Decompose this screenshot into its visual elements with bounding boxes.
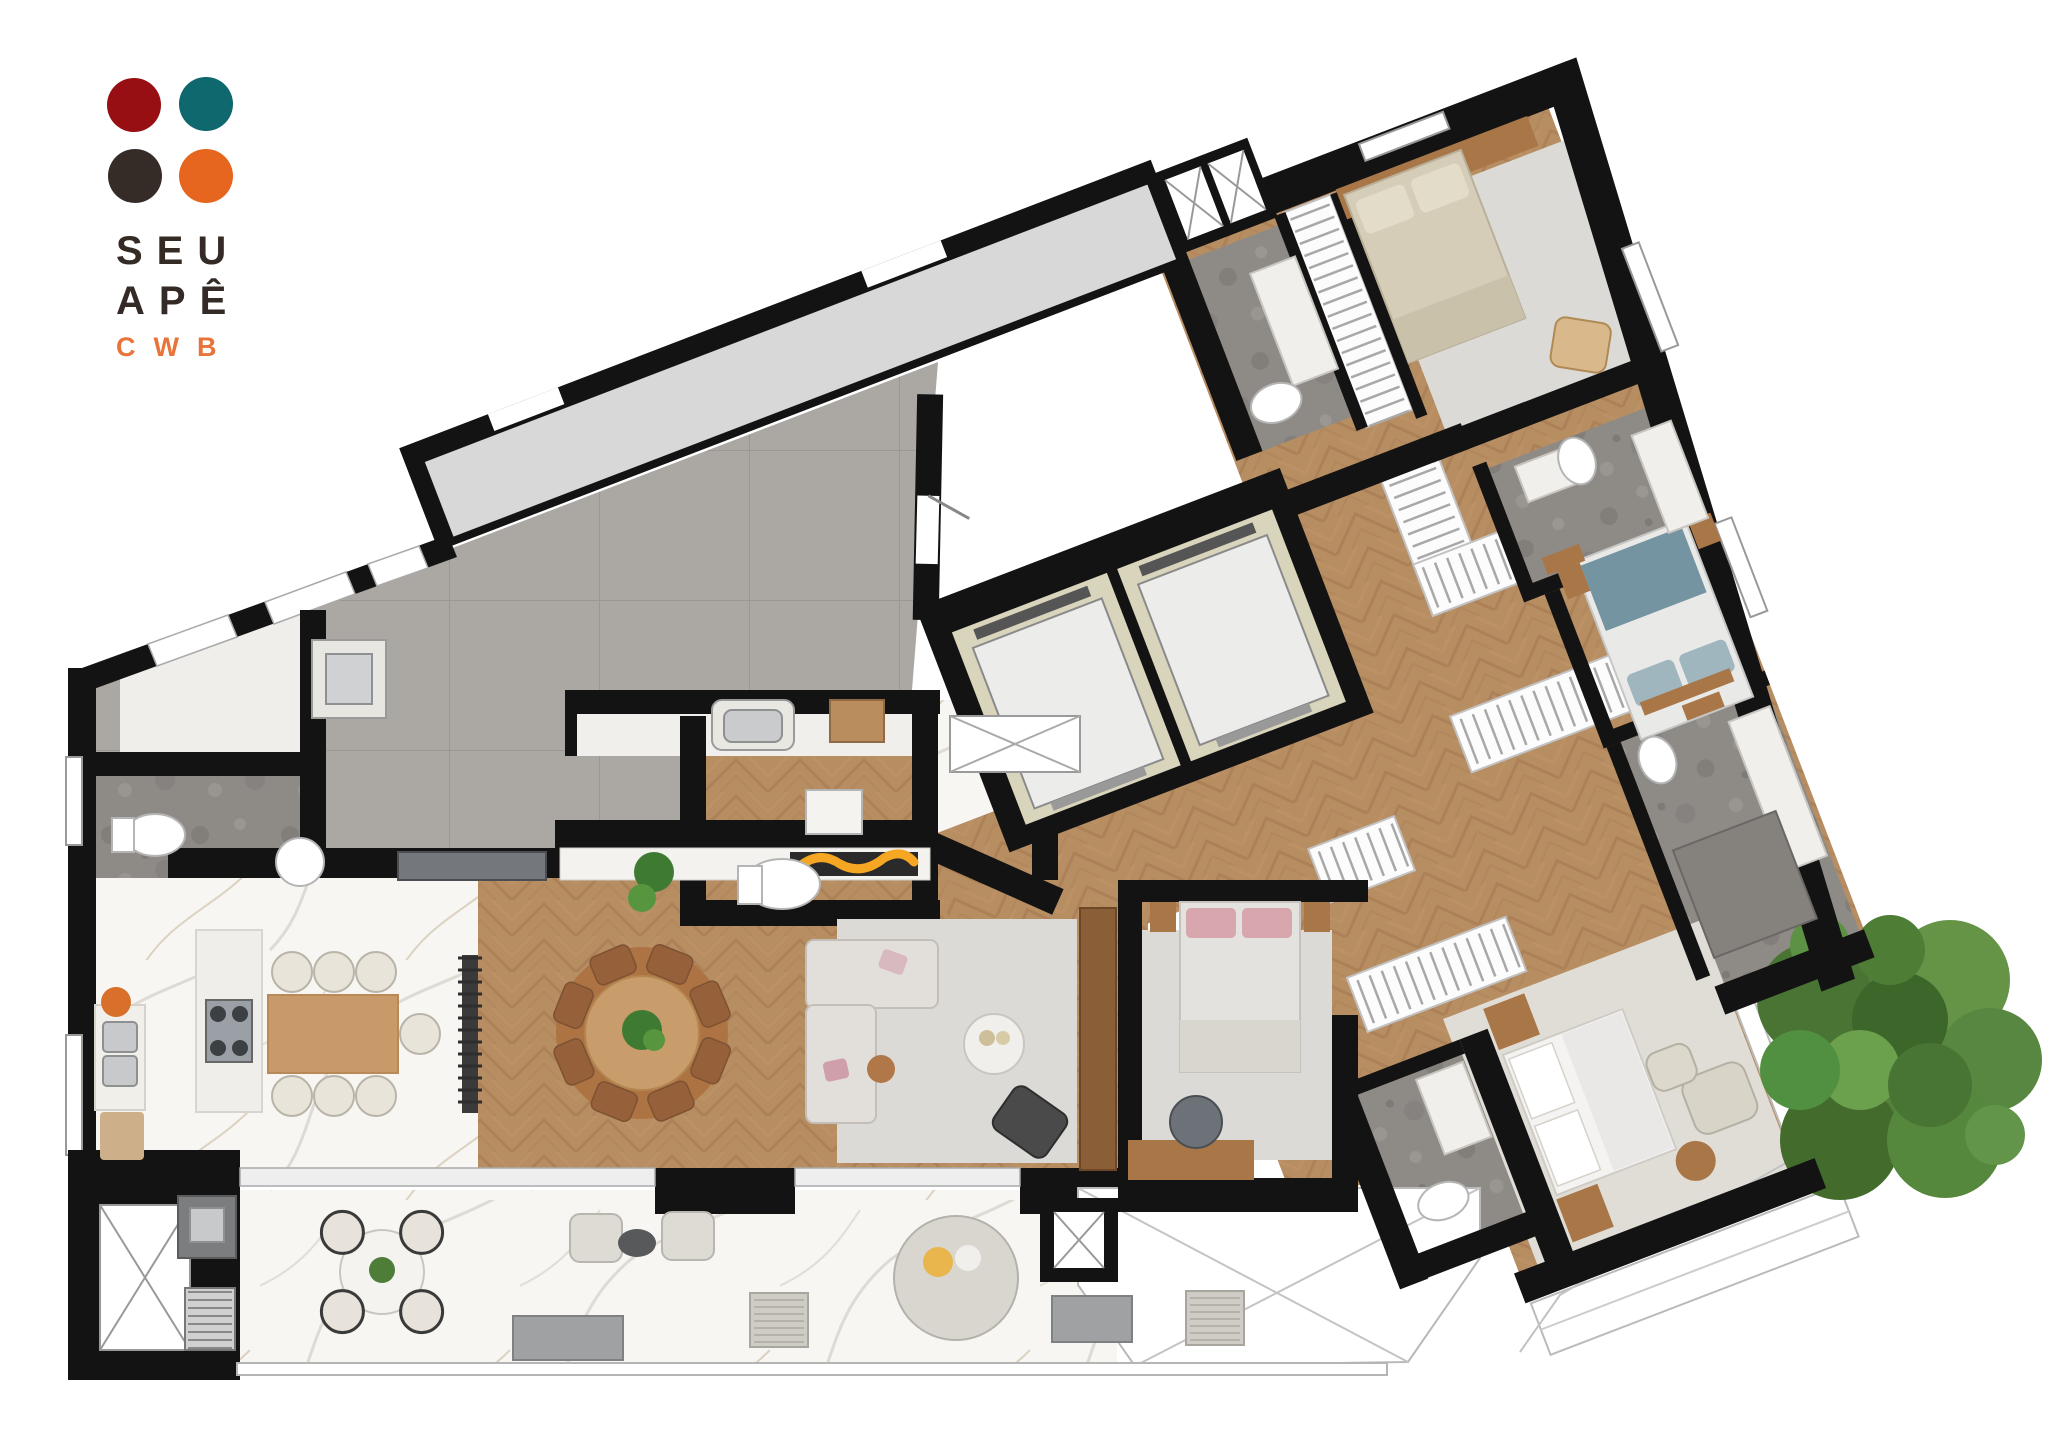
svg-text:CWB: CWB — [116, 332, 234, 362]
svg-text:APÊ: APÊ — [116, 277, 240, 323]
svg-text:SEU: SEU — [116, 229, 240, 273]
